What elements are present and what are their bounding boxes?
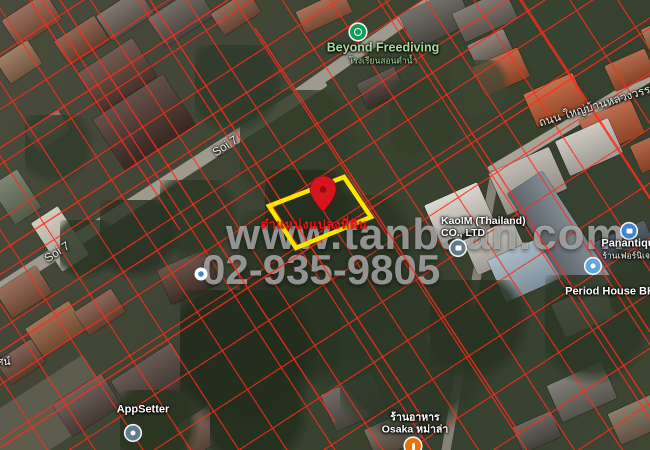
poi-name-line2: Osaka หม่าล่า (382, 424, 449, 436)
poi-label-beyond-freediving[interactable]: Beyond Freediving โรงเรียนสอนดำน้ำ (327, 41, 440, 66)
poi-label-osaka[interactable]: ร้านอาหาร Osaka หม่าล่า (382, 412, 449, 437)
red-map-pin-icon[interactable] (310, 176, 336, 212)
parcel-position-label: ตำแหน่งแปลงที่ดิน (261, 218, 368, 233)
poi-name: KaoIM (Thailand) (441, 215, 526, 227)
poi-label-panantique[interactable]: Panantique ร้านเฟอร์นิเจอร์ (601, 238, 650, 261)
company-icon[interactable] (451, 241, 466, 256)
poi-name: Panantique (601, 238, 650, 250)
place-icon[interactable] (126, 426, 141, 441)
poi-label-edge-partial: ภูมิทัศน์ (0, 356, 11, 368)
dive-shop-icon[interactable] (350, 24, 366, 40)
poi-label-period-house[interactable]: Period House BKK (565, 286, 650, 299)
poi-name: ร้านอาหาร (390, 412, 439, 424)
place-dot-icon[interactable] (195, 268, 208, 281)
lodging-icon[interactable] (586, 259, 601, 274)
poi-category: โรงเรียนสอนดำน้ำ (327, 55, 440, 65)
store-icon[interactable] (622, 224, 637, 239)
poi-name-line2: CO., LTD (441, 227, 485, 239)
restaurant-icon[interactable] (405, 438, 421, 450)
poi-name: Beyond Freediving (327, 41, 440, 55)
poi-category: ร้านเฟอร์นิเจอร์ (601, 250, 650, 260)
poi-label-kaoim[interactable]: KaoIM (Thailand) CO., LTD (441, 215, 526, 240)
poi-label-appsetter[interactable]: AppSetter (117, 404, 170, 417)
map-canvas[interactable]: www.tanbaan.com 02-935-9805 Soi 7 Soi (0, 0, 650, 450)
